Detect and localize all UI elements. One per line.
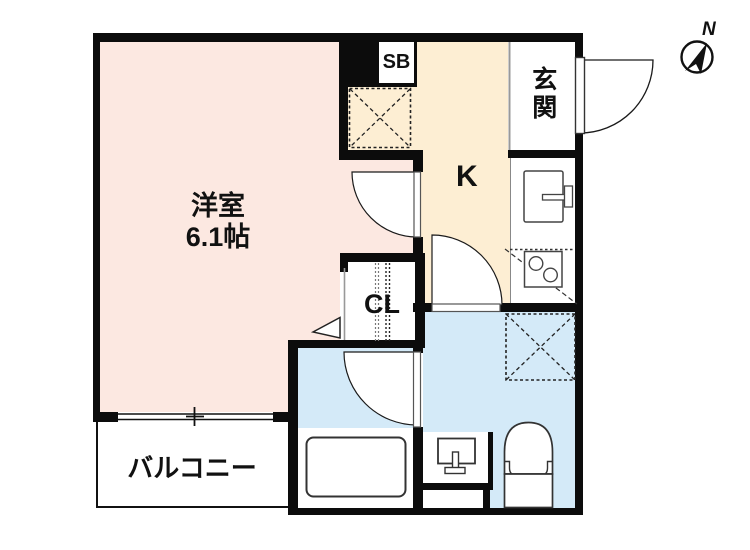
western-room-label-group: 洋室 6.1帖 [128, 191, 308, 253]
western-room-label: 洋室 [128, 191, 308, 222]
gas-stove-icon [525, 252, 563, 288]
western-room-size-label: 6.1帖 [128, 222, 308, 253]
compass-icon [682, 42, 713, 75]
washbasin-icon [438, 439, 475, 474]
bath-door [344, 352, 421, 427]
balcony-label: バルコニー [96, 454, 288, 484]
washing-machine-space-icon [506, 314, 575, 380]
refrigerator-space-icon [350, 89, 411, 148]
floorplan: SB [0, 0, 750, 550]
toilet-icon [505, 423, 553, 508]
closet-door-indicator [313, 268, 345, 340]
compass-north-label: N [702, 19, 716, 41]
entrance-label: 玄関 [528, 66, 557, 122]
sliding-window [118, 407, 273, 426]
bathtub-icon [307, 438, 406, 497]
closet-label: CL [347, 289, 417, 320]
washroom-door [432, 235, 502, 312]
kitchen-label: K [456, 160, 478, 195]
kitchen-sink-icon [524, 171, 573, 222]
room-door [352, 172, 421, 237]
entrance-door [576, 58, 654, 134]
